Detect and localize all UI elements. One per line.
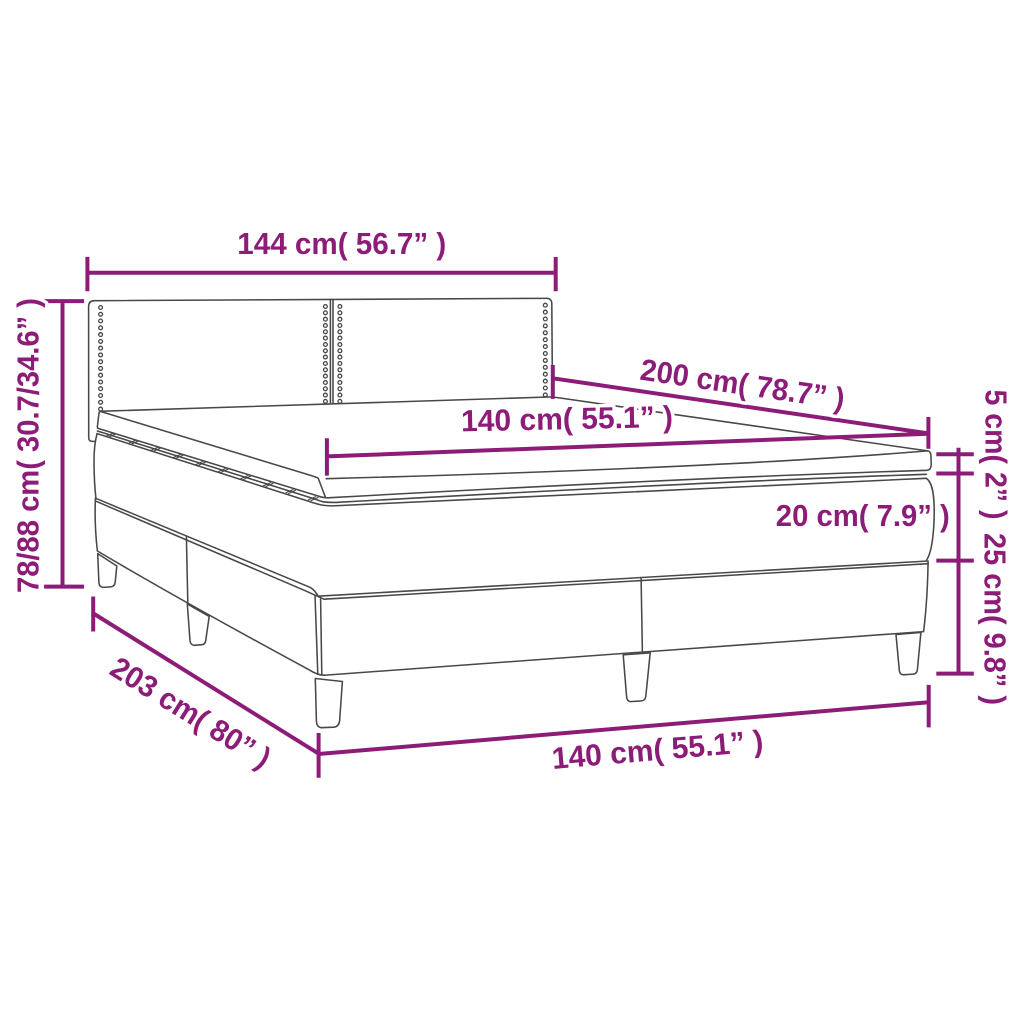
svg-text:140 cm( 55.1” ): 140 cm( 55.1” ) — [461, 400, 674, 438]
svg-text:78/88 cm( 30.7/34.6” ): 78/88 cm( 30.7/34.6” ) — [11, 298, 45, 593]
svg-text:20 cm( 7.9” ): 20 cm( 7.9” ) — [776, 499, 950, 533]
svg-text:144 cm( 56.7” ): 144 cm( 56.7” ) — [237, 227, 446, 261]
svg-text:5 cm( 2” ): 5 cm( 2” ) — [979, 390, 1013, 520]
svg-text:25 cm( 9.8” ): 25 cm( 9.8” ) — [978, 533, 1012, 705]
